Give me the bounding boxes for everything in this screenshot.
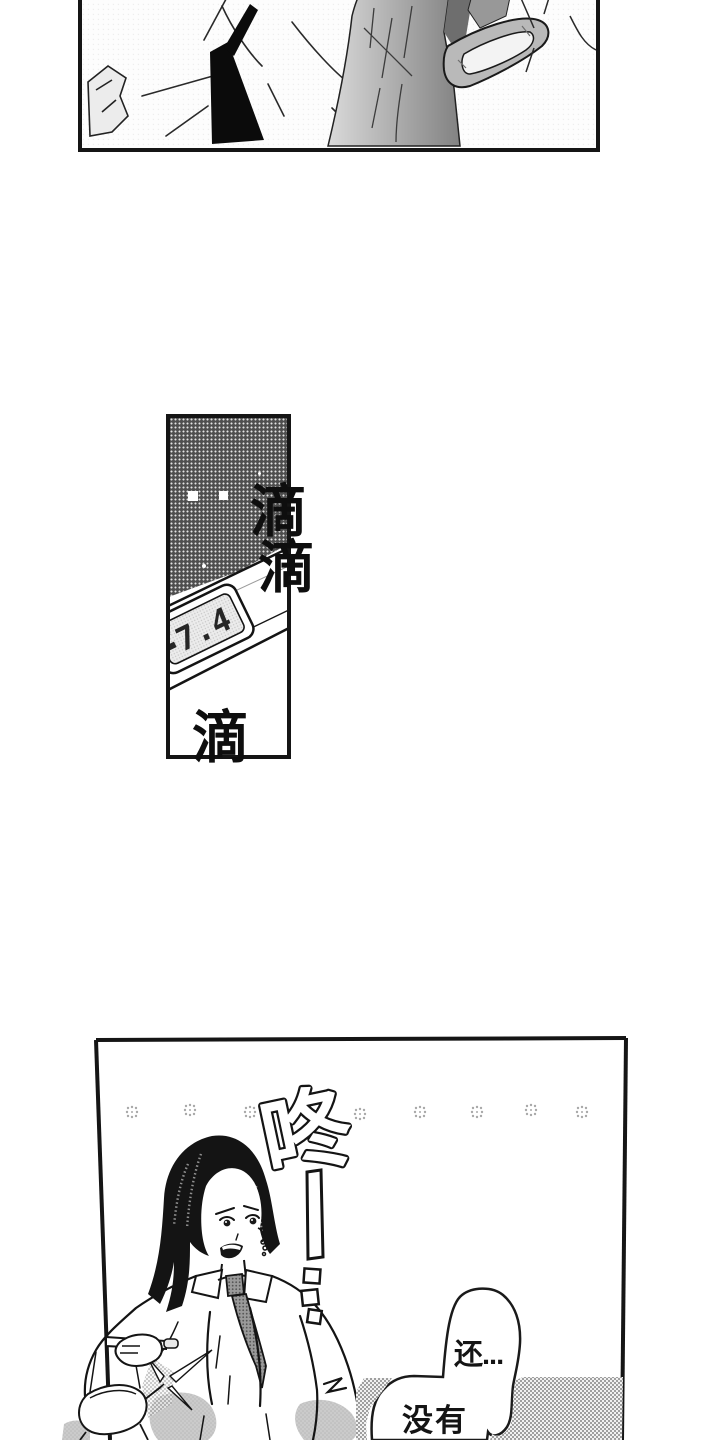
panel-woman: 咚 <box>60 1036 632 1440</box>
panel-top <box>78 0 600 152</box>
sfx-drip-2: 滴 <box>258 540 315 597</box>
speech-line-2: 没有 <box>402 1405 468 1436</box>
sfx-drip-3: 滴 <box>192 710 249 767</box>
speech-line-1: 还... <box>454 1341 503 1370</box>
manga-page: 7.4 滴 滴 滴 <box>0 0 720 1440</box>
top-panel-art <box>82 0 596 148</box>
hand <box>116 1335 163 1366</box>
ornament-row <box>126 1104 588 1120</box>
sfx-drip-1: 滴 <box>250 484 307 541</box>
cuff <box>79 1385 148 1440</box>
sfx-dash-and-dots <box>301 1170 323 1324</box>
